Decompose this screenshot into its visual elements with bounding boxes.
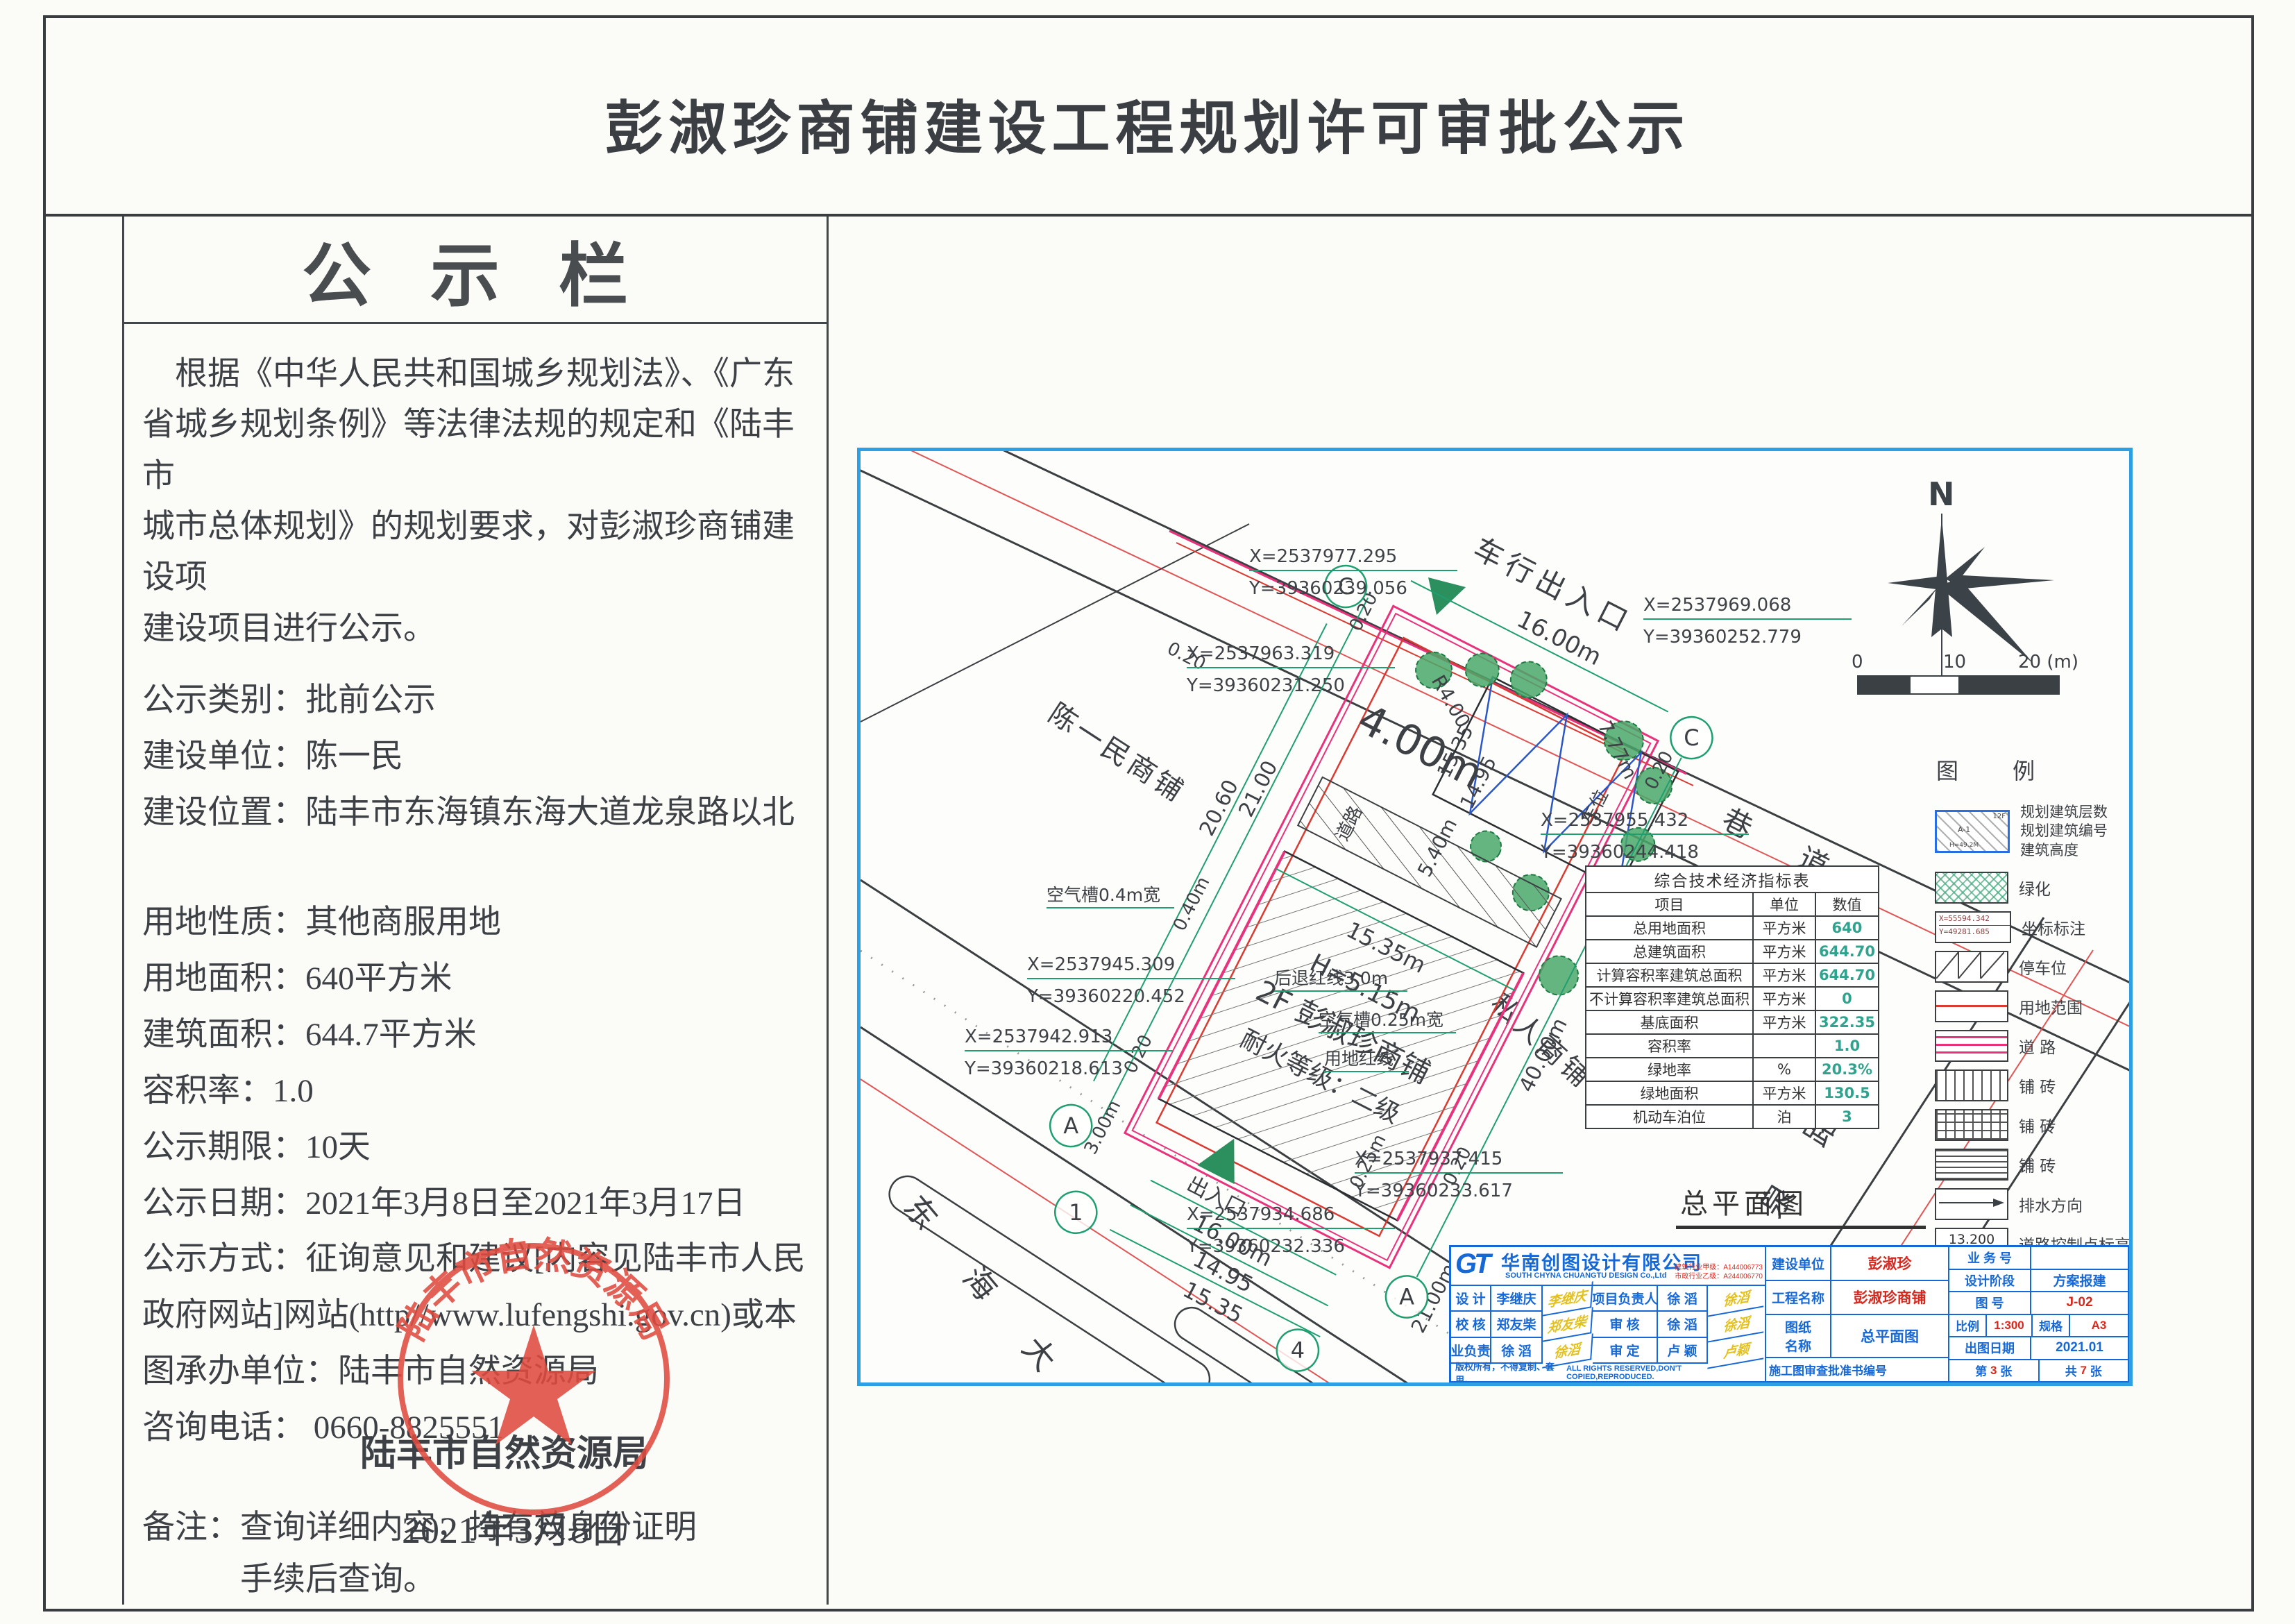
staff-grid: 设 计 李继庆 李继庆 项目负责人 徐 滔 徐滔 校 核 郑友柴 郑友柴 审 核…	[1451, 1286, 1765, 1364]
legend-title: 图 例	[1936, 754, 2125, 786]
total-prefix: 共	[2065, 1362, 2077, 1379]
row-unit: 泊	[1753, 1105, 1815, 1128]
field-land-area: 用地面积：640平方米	[142, 951, 808, 1007]
page-prefix: 第	[1975, 1362, 1987, 1379]
coord-y: Y=39360220.452	[1026, 986, 1185, 1007]
role-design: 设 计	[1451, 1286, 1491, 1312]
official-stamp: 陆丰市自然资源局	[381, 1226, 686, 1532]
scale-20: 20 (m)	[2018, 652, 2078, 673]
copyright-en: ALL RIGHTS RESERVED,DON'T COPIED,REPRODU…	[1566, 1364, 1761, 1381]
field-type: 公示类别：批前公示	[142, 673, 808, 729]
axis-number: 4	[1291, 1337, 1305, 1364]
legend-label-floors: 规划建筑层数	[2020, 803, 2108, 822]
row-item: 计算容积率建筑总面积	[1586, 963, 1753, 987]
biz-label: 业 务 号	[1949, 1247, 2031, 1269]
legend-item-drain: 排水方向	[1935, 1189, 2125, 1219]
axis-letter: A	[1063, 1113, 1078, 1139]
coord-x: X=2537955.432	[1541, 810, 1688, 831]
title-block: GT 华南创图设计有限公司 SOUTH CHYNA CHUANGTU DESIG…	[1449, 1245, 2130, 1383]
biz-value	[2031, 1247, 2128, 1269]
row-unit: 平方米	[1753, 963, 1815, 987]
legend-label-code: 规划建筑编号	[2020, 822, 2108, 840]
project-row: 工程名称 彭淑珍商铺	[1766, 1281, 1948, 1315]
north-arrow-icon: N	[1888, 475, 2054, 680]
date-row: 出图日期 2021.01	[1949, 1337, 2128, 1360]
note-text: 空气槽0.4m宽	[1047, 885, 1160, 905]
row-item: 绿地率	[1586, 1058, 1753, 1081]
pages-row: 第 3 张 共 7 张	[1949, 1360, 2128, 1382]
symbol-height: H=49.2M	[1949, 843, 1979, 849]
coordinate-symbol-icon: X=55594.342 Y=49281.685	[1935, 911, 2011, 943]
coord-y: Y=39360218.613	[964, 1058, 1123, 1079]
coord-x: X=2537977.295	[1249, 546, 1397, 567]
title-block-project-pane: 建设单位 彭淑珍 工程名称 彭淑珍商铺 图纸 名称 总平面图 施工图审查批准书编…	[1766, 1247, 1949, 1381]
title-block-company-pane: GT 华南创图设计有限公司 SOUTH CHYNA CHUANGTU DESIG…	[1451, 1247, 1766, 1381]
row-value: 3	[1815, 1105, 1879, 1128]
name-pm: 徐 滔	[1658, 1286, 1708, 1312]
site-plan-sheet: 车行出入口 巷 道 东 海 大 道 龙 泉 路 陈一民商铺 私人商铺 车位	[857, 448, 2133, 1386]
legend-item-brick1: 铺 砖	[1935, 1070, 2125, 1101]
symbol-floors: 12F	[1993, 813, 2006, 820]
legend: 图 例 12F A-1 H=49.2M 规划建筑层数 规划建筑编号 建筑高度 绿…	[1935, 754, 2125, 1268]
row-value: 20.3%	[1815, 1058, 1879, 1081]
company-name-en: SOUTH CHYNA CHUANGTU DESIGN Co.,Ltd	[1505, 1271, 1666, 1280]
sheet-row: 图纸 名称 总平面图	[1766, 1315, 1948, 1359]
role-pm: 项目负责人	[1593, 1286, 1658, 1312]
building-symbol-icon: 12F A-1 H=49.2M	[1935, 810, 2010, 853]
legend-label: 坐标标注	[2022, 915, 2085, 939]
note-air-gap-025: 空气槽0.25m宽	[1319, 1010, 1456, 1033]
project-value: 彭淑珍商铺	[1831, 1281, 1948, 1314]
credential-2: 市政行业乙级：A244006770	[1675, 1273, 1763, 1282]
parking-symbol-icon	[1935, 951, 2008, 983]
stamp-star	[471, 1325, 596, 1445]
notice-board: 公 示 栏 根据《中华人民共和国城乡规划法》、《广东 省城乡规划条例》等法律法规…	[122, 217, 829, 1605]
sheet-value: 总平面图	[1831, 1315, 1948, 1357]
legend-item-parking: 停车位	[1935, 951, 2125, 982]
coord-y: Y=39360239.056	[1248, 578, 1407, 599]
label-neighbor-left: 陈一民商铺	[1043, 697, 1192, 809]
row-unit: 平方米	[1753, 987, 1815, 1010]
col-unit: 单位	[1753, 893, 1815, 916]
drainage-symbol-icon	[1935, 1188, 2008, 1220]
note-setback: 后退红线3.0m	[1274, 968, 1407, 991]
note-text: 用地红线	[1324, 1049, 1394, 1069]
approval-row: 施工图审查批准书编号	[1766, 1358, 1948, 1381]
col-value: 数值	[1815, 893, 1879, 916]
axis-number: 1	[1069, 1199, 1083, 1226]
scale-size-row: 比例 1:300 规格 A3	[1949, 1315, 2128, 1338]
page-suffix: 张	[2000, 1362, 2012, 1379]
stage-value: 方案报建	[2031, 1270, 2128, 1292]
row-value: 1.0	[1815, 1034, 1879, 1058]
page-num: 3	[1990, 1364, 1997, 1378]
row-item: 基底面积	[1586, 1010, 1753, 1034]
coord-y: Y=39360232.336	[1186, 1236, 1345, 1257]
total-pages: 共 7 张	[2040, 1360, 2128, 1382]
scale-label: 比例	[1949, 1315, 1987, 1337]
stage-row: 设计阶段 方案报建	[1949, 1270, 2128, 1293]
caption-title: 总平面图	[1676, 1181, 1926, 1229]
row-unit: 平方米	[1753, 1010, 1815, 1034]
axis-bubble-4: 4	[1270, 1322, 1326, 1378]
legend-label: 铺 砖	[2019, 1074, 2056, 1097]
scale-bar: 0 10 20 (m)	[1852, 652, 2078, 694]
coord-y: Y=39360233.617	[1354, 1181, 1513, 1201]
row-value: 640	[1815, 916, 1879, 940]
name-review: 徐 滔	[1658, 1312, 1708, 1337]
figure-value: J-02	[2031, 1292, 2128, 1314]
company-credentials: 建筑行业甲级：A144006773 市政行业乙级：A244006770	[1675, 1264, 1763, 1281]
project-label: 工程名称	[1766, 1281, 1831, 1314]
vehicle-entrance-arrow-icon	[1428, 577, 1466, 615]
row-unit	[1753, 1034, 1815, 1058]
board-header: 公 示 栏	[124, 217, 827, 324]
size-label: 规格	[2033, 1315, 2070, 1337]
coord-y: Y=39360244.418	[1540, 842, 1699, 863]
row-item: 总建筑面积	[1586, 940, 1753, 963]
row-value: 0	[1815, 987, 1879, 1010]
legend-label: 绿化	[2019, 876, 2051, 899]
total-suffix: 张	[2090, 1362, 2102, 1379]
legend-building-labels: 规划建筑层数 规划建筑编号 建筑高度	[2020, 803, 2108, 860]
owner-row: 建设单位 彭淑珍	[1766, 1247, 1948, 1281]
legend-label: 铺 砖	[2019, 1113, 2056, 1137]
company-row: GT 华南创图设计有限公司 SOUTH CHYNA CHUANGTU DESIG…	[1451, 1247, 1765, 1286]
approval-label: 施工图审查批准书编号	[1766, 1358, 1948, 1381]
field-dates: 公示日期：2021年3月8日至2021年3月17日	[142, 1176, 808, 1232]
paving-symbol-icon	[1935, 1149, 2008, 1181]
scale-10: 10	[1943, 652, 1966, 673]
stage-label: 设计阶段	[1949, 1270, 2031, 1292]
coord-x: X=2537963.319	[1187, 643, 1335, 664]
owner-value: 彭淑珍	[1831, 1247, 1948, 1280]
legend-item-green: 绿化	[1935, 872, 2125, 903]
road-symbol-icon	[1935, 1030, 2008, 1062]
dim-040: 0.40m	[1169, 874, 1214, 935]
date-label: 出图日期	[1949, 1337, 2031, 1359]
coord-x: X=2537934.686	[1187, 1204, 1335, 1225]
date-value: 2021.01	[2031, 1337, 2128, 1359]
row-value: 644.70	[1815, 963, 1879, 987]
table-title: 综合技术经济指标表	[1586, 866, 1879, 893]
row-value: 322.35	[1815, 1010, 1879, 1034]
field-period: 公示期限：10天	[142, 1119, 808, 1176]
size-value: A3	[2070, 1315, 2128, 1337]
note-text: 空气槽0.25m宽	[1319, 1010, 1443, 1030]
field-land-use: 用地性质：其他商服用地	[142, 895, 808, 951]
scale-value: 1:300	[1987, 1315, 2033, 1337]
coord-x: X=2537945.309	[1027, 954, 1175, 975]
intro-paragraph: 根据《中华人民共和国城乡规划法》、《广东 省城乡规划条例》等法律法规的规定和《陆…	[142, 349, 808, 654]
row-item: 绿地面积	[1586, 1081, 1753, 1105]
north-letter: N	[1928, 475, 1955, 513]
col-item: 项目	[1586, 893, 1753, 916]
figure-row: 图 号 J-02	[1949, 1292, 2128, 1315]
role-review: 审 核	[1593, 1312, 1658, 1337]
biz-row: 业 务 号	[1949, 1247, 2128, 1270]
coord-2: X=2537963.319 Y=39360231.250	[1186, 643, 1395, 696]
coord-x: X=2537942.913	[965, 1026, 1112, 1047]
axis-letter: C	[1684, 725, 1699, 751]
role-approve: 审 定	[1593, 1338, 1658, 1364]
row-unit: 平方米	[1753, 1081, 1815, 1105]
legend-item-brick3: 铺 砖	[1935, 1149, 2125, 1180]
legend-label: 停车位	[2019, 955, 2067, 979]
row-unit: 平方米	[1753, 916, 1815, 940]
row-item: 总用地面积	[1586, 916, 1753, 940]
row-item: 不计算容积率建筑总面积	[1586, 987, 1753, 1010]
row-unit: %	[1753, 1058, 1815, 1081]
label-donghai-avenue: 东 海 大 道	[897, 1188, 1140, 1382]
row-value: 644.70	[1815, 940, 1879, 963]
role-check: 校 核	[1451, 1312, 1491, 1337]
indicator-table: 综合技术经济指标表 项目 单位 数值 总用地面积平方米640 总建筑面积平方米6…	[1585, 865, 1879, 1129]
legend-label: 用地范围	[2019, 995, 2083, 1018]
legend-item-brick2: 铺 砖	[1935, 1110, 2125, 1140]
field-owner: 建设单位：陈一民	[142, 729, 808, 785]
paving-symbol-icon	[1935, 1109, 2008, 1141]
legend-item-road: 道 路	[1935, 1031, 2125, 1061]
row-value: 130.5	[1815, 1081, 1879, 1105]
legend-coord-y: Y=49281.685	[1939, 926, 2010, 938]
symbol-code: A-1	[1958, 826, 1970, 834]
coord-3: X=2537969.068 Y=39360252.779	[1643, 595, 1852, 648]
coord-5: X=2537945.309 Y=39360220.452	[1026, 954, 1235, 1007]
row-item: 机动车泊位	[1586, 1105, 1753, 1128]
name-approve: 卢 颖	[1658, 1338, 1708, 1364]
coord-y: Y=39360231.250	[1186, 675, 1345, 696]
name-design: 李继庆	[1491, 1286, 1543, 1312]
note-text: 后退红线3.0m	[1274, 968, 1388, 988]
document-title: 彭淑珍商铺建设工程规划许可审批公示	[0, 82, 2295, 166]
legend-label-height: 建筑高度	[2020, 841, 2108, 860]
scale-0: 0	[1852, 652, 1863, 673]
legend-coord-x: X=55594.342	[1939, 913, 2010, 926]
legend-label: 道 路	[2019, 1034, 2056, 1058]
axis-letter: A	[1399, 1284, 1414, 1310]
greenery-symbol-icon	[1935, 872, 2008, 904]
owner-label: 建设单位	[1766, 1247, 1831, 1280]
total-num: 7	[2081, 1364, 2087, 1378]
company-logo: GT	[1455, 1249, 1489, 1280]
legend-item-building: 12F A-1 H=49.2M 规划建筑层数 规划建筑编号 建筑高度	[1935, 800, 2125, 863]
field-far: 容积率：1.0	[142, 1063, 808, 1119]
sheet-label: 图纸 名称	[1766, 1315, 1831, 1357]
scanned-notice-page: 彭淑珍商铺建设工程规划许可审批公示 公 示 栏 根据《中华人民共和国城乡规划法》…	[0, 0, 2295, 1624]
name-check: 郑友柴	[1491, 1312, 1543, 1337]
note-air-gap-04: 空气槽0.4m宽	[1047, 885, 1174, 908]
credential-1: 建筑行业甲级：A144006773	[1675, 1264, 1763, 1273]
page-number: 第 3 张	[1949, 1360, 2040, 1382]
title-block-meta-pane: 业 务 号 设计阶段 方案报建 图 号 J-02 比例 1:300 规格 A3	[1949, 1247, 2128, 1381]
land-extent-symbol-icon	[1935, 990, 2008, 1022]
legend-item-land: 用地范围	[1935, 991, 2125, 1022]
figure-label: 图 号	[1949, 1292, 2031, 1314]
row-item: 容积率	[1586, 1034, 1753, 1058]
field-floor-area: 建筑面积：644.7平方米	[142, 1007, 808, 1063]
legend-label: 排水方向	[2019, 1192, 2083, 1216]
legend-label: 铺 砖	[2019, 1153, 2056, 1176]
coord-y: Y=39360252.779	[1643, 627, 1802, 648]
field-location: 建设位置：陆丰市东海镇东海大道龙泉路以北	[142, 785, 808, 841]
paving-symbol-icon	[1935, 1069, 2008, 1101]
row-unit: 平方米	[1753, 940, 1815, 963]
coord-x: X=2537969.068	[1643, 595, 1791, 616]
legend-item-coordinate: X=55594.342 Y=49281.685 坐标标注	[1935, 912, 2125, 942]
coord-x: X=2537937.415	[1355, 1149, 1502, 1169]
